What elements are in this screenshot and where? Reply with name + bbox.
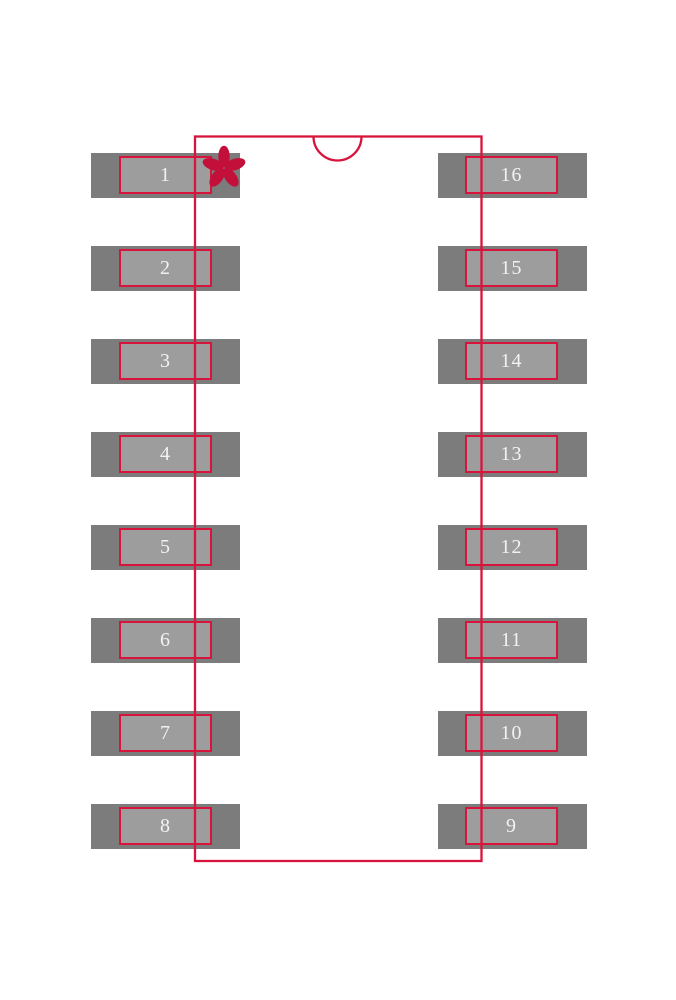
pad-number: 12 xyxy=(501,537,523,557)
pad-number: 15 xyxy=(501,258,523,278)
pad-number: 16 xyxy=(501,165,523,185)
pad-number: 13 xyxy=(501,444,523,464)
pad-6: 6 xyxy=(91,618,240,663)
pad-7: 7 xyxy=(91,711,240,756)
pad-10: 10 xyxy=(438,711,587,756)
pad-5-paste-outline: 5 xyxy=(119,528,212,566)
pad-number: 14 xyxy=(501,351,523,371)
pad-3-paste-outline: 3 xyxy=(119,342,212,380)
pad-1: 1 xyxy=(91,153,240,198)
pad-number: 4 xyxy=(160,444,171,464)
orientation-notch-icon xyxy=(314,137,362,161)
pad-12: 12 xyxy=(438,525,587,570)
pad-14: 14 xyxy=(438,339,587,384)
pad-11-paste-outline: 11 xyxy=(465,621,558,659)
pad-number: 1 xyxy=(160,165,171,185)
pad-number: 3 xyxy=(160,351,171,371)
pad-1-paste-outline: 1 xyxy=(119,156,212,194)
pad-number: 11 xyxy=(501,630,522,650)
pad-9-paste-outline: 9 xyxy=(465,807,558,845)
pad-12-paste-outline: 12 xyxy=(465,528,558,566)
pad-5: 5 xyxy=(91,525,240,570)
silkscreen-overlay xyxy=(0,0,676,1000)
pad-13-paste-outline: 13 xyxy=(465,435,558,473)
pad-4-paste-outline: 4 xyxy=(119,435,212,473)
pad-6-paste-outline: 6 xyxy=(119,621,212,659)
pad-7-paste-outline: 7 xyxy=(119,714,212,752)
pad-2: 2 xyxy=(91,246,240,291)
pad-number: 5 xyxy=(160,537,171,557)
pad-number: 6 xyxy=(160,630,171,650)
pad-number: 7 xyxy=(160,723,171,743)
pad-15-paste-outline: 15 xyxy=(465,249,558,287)
pad-number: 8 xyxy=(160,816,171,836)
footprint-canvas: 1 2 3 4 5 6 7 8 16 xyxy=(0,0,676,1000)
pad-13: 13 xyxy=(438,432,587,477)
pad-number: 9 xyxy=(506,816,517,836)
pad-16-paste-outline: 16 xyxy=(465,156,558,194)
pad-16: 16 xyxy=(438,153,587,198)
pad-9: 9 xyxy=(438,804,587,849)
pad-2-paste-outline: 2 xyxy=(119,249,212,287)
pad-8: 8 xyxy=(91,804,240,849)
pad-4: 4 xyxy=(91,432,240,477)
pad-number: 2 xyxy=(160,258,171,278)
pad-3: 3 xyxy=(91,339,240,384)
pad-number: 10 xyxy=(501,723,523,743)
pad-8-paste-outline: 8 xyxy=(119,807,212,845)
pad-10-paste-outline: 10 xyxy=(465,714,558,752)
pad-15: 15 xyxy=(438,246,587,291)
pad-11: 11 xyxy=(438,618,587,663)
pad-14-paste-outline: 14 xyxy=(465,342,558,380)
